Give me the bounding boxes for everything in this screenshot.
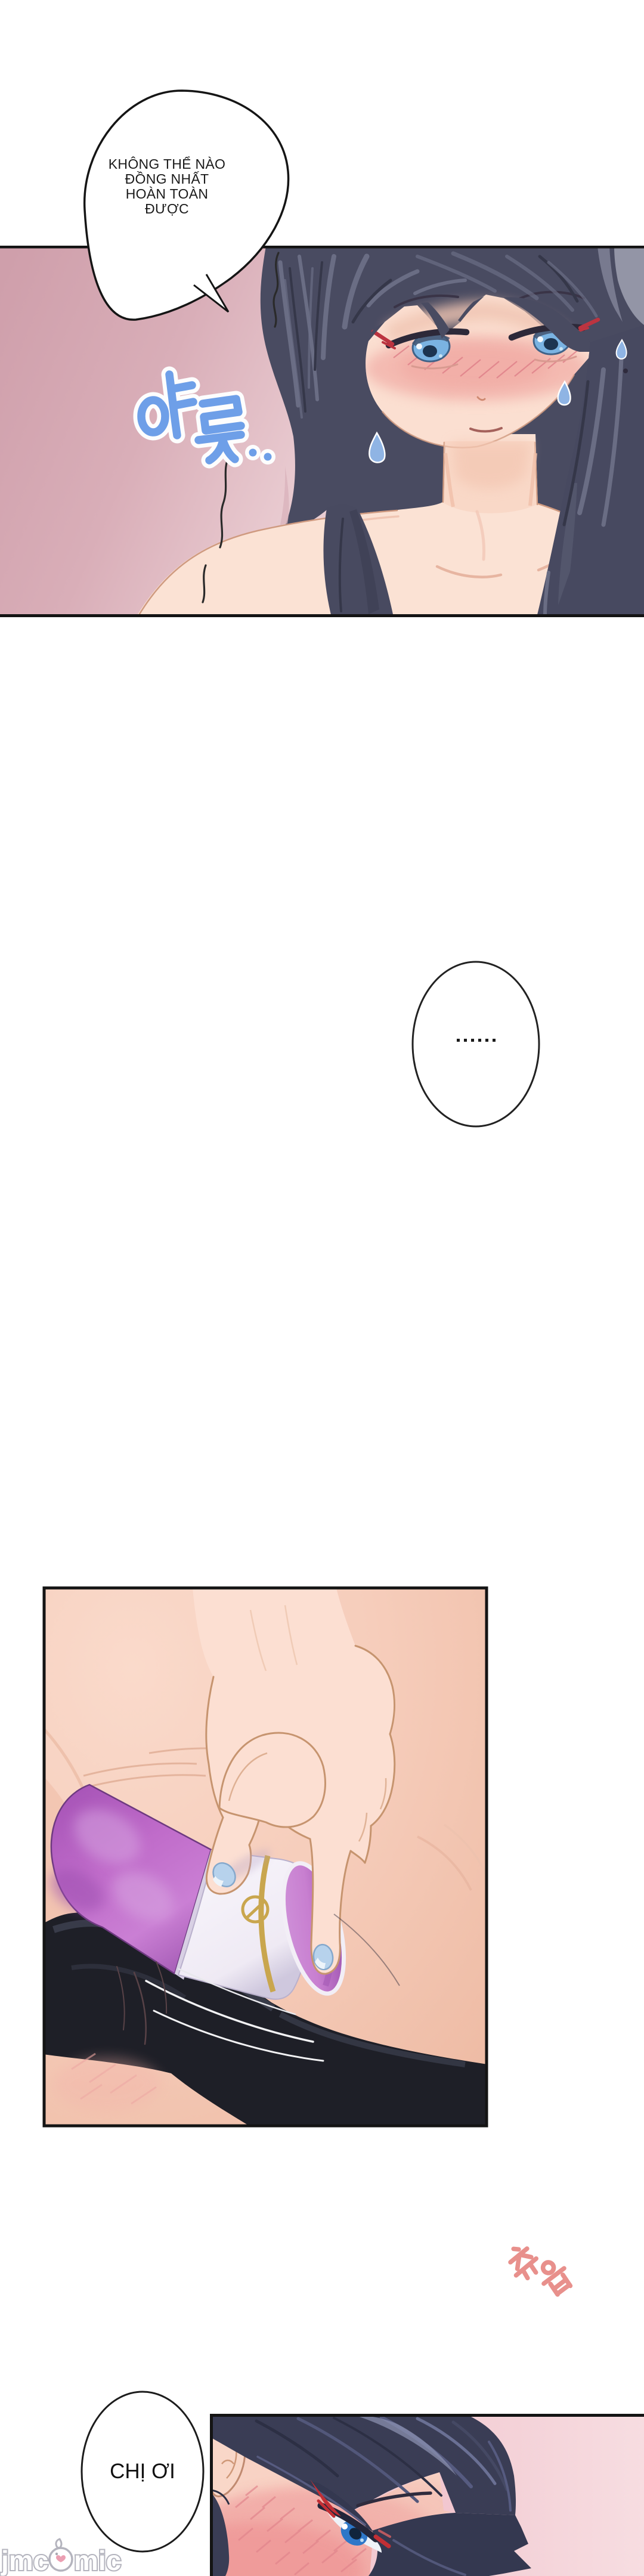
svg-text:HOÀN TOÀN: HOÀN TOÀN (126, 186, 209, 202)
svg-text:ĐƯỢC: ĐƯỢC (145, 201, 189, 216)
svg-text:KHÔNG THỂ NÀO: KHÔNG THỂ NÀO (109, 156, 225, 172)
svg-text:ĐỒNG NHẤT: ĐỒNG NHẤT (125, 171, 209, 187)
svg-text:jmc: jmc (1, 2545, 48, 2576)
svg-text:CHỊ ƠI: CHỊ ƠI (110, 2460, 175, 2483)
svg-text:mic: mic (74, 2545, 121, 2576)
